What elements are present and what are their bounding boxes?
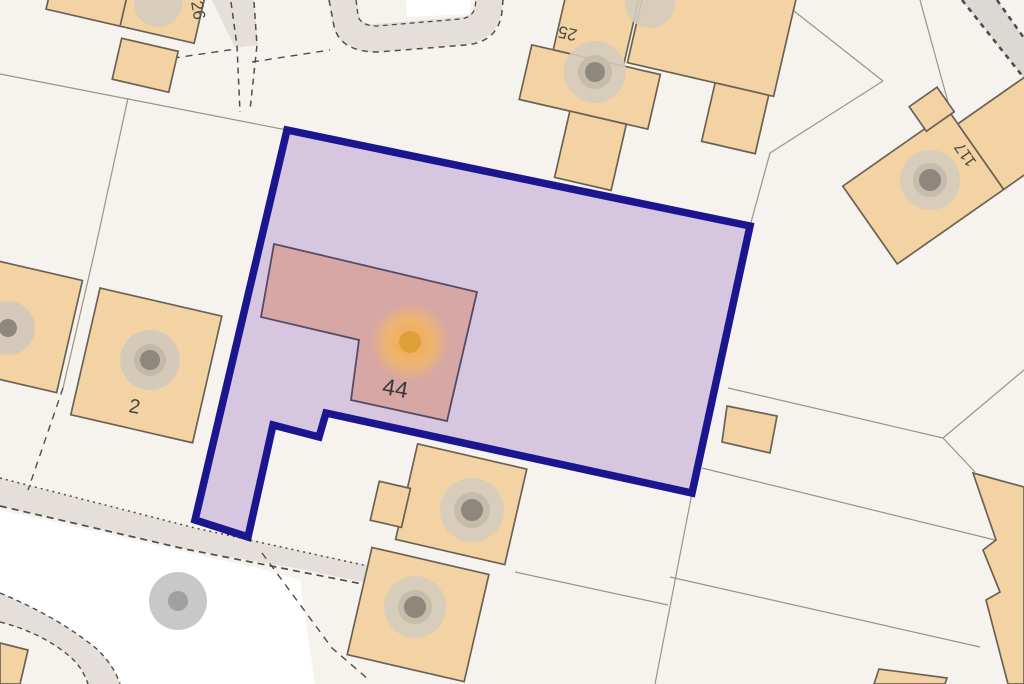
tree-icon — [384, 576, 446, 638]
property-marker-icon — [399, 331, 421, 353]
tree-icon — [564, 41, 626, 103]
label-house-44: 44 — [381, 373, 411, 403]
property-map: 26 25 117 2 44 — [0, 0, 1024, 684]
label-house-26: 26 — [187, 0, 209, 21]
tree-icon — [120, 330, 180, 390]
tree-icon — [900, 150, 960, 210]
tree-icon — [149, 572, 207, 630]
tree-icon — [440, 478, 504, 542]
property-map-canvas[interactable]: 26 25 117 2 44 — [0, 0, 1024, 684]
